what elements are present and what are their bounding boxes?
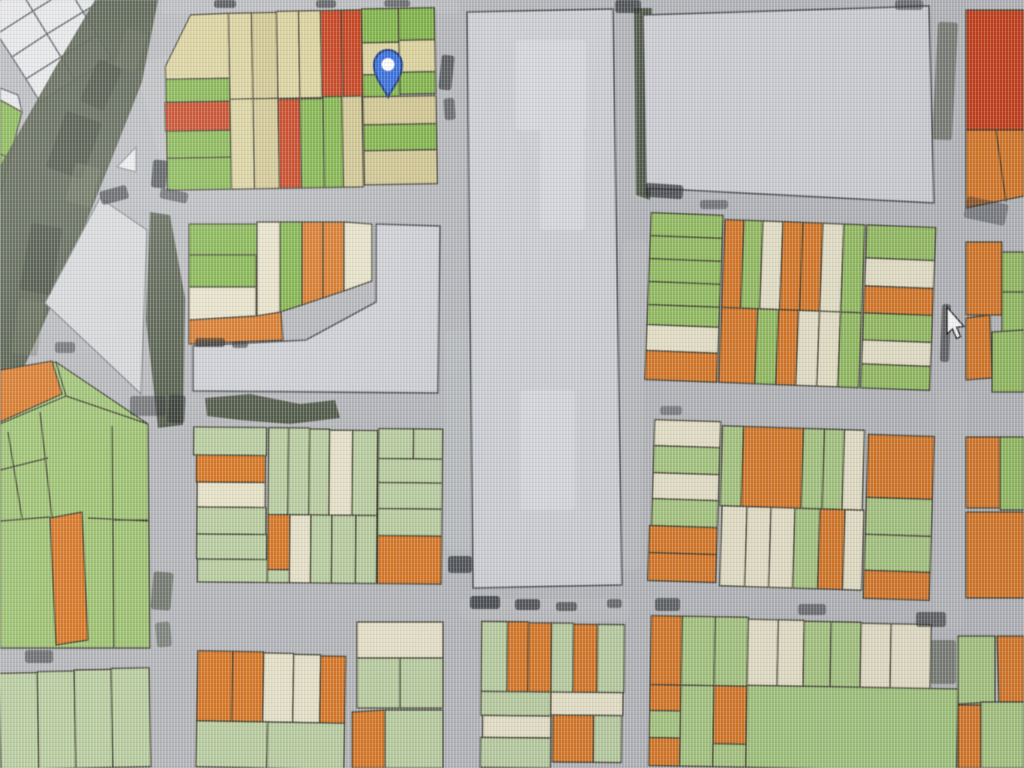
parcel[interactable] — [399, 40, 436, 73]
parcel[interactable] — [650, 685, 681, 712]
parcel[interactable] — [0, 673, 39, 768]
parcel[interactable] — [780, 222, 803, 311]
parcel[interactable] — [593, 715, 621, 762]
parcel[interactable] — [551, 692, 623, 716]
parcel[interactable] — [310, 515, 332, 583]
parcel[interactable] — [866, 225, 936, 261]
building-roof-detail — [540, 130, 585, 230]
parcel[interactable] — [385, 710, 443, 768]
block-east-upper — [645, 213, 936, 391]
parcel[interactable] — [552, 715, 593, 762]
road-mark — [316, 0, 336, 8]
parcel[interactable] — [363, 96, 436, 125]
parcel[interactable] — [863, 313, 933, 343]
parcel[interactable] — [1002, 252, 1024, 292]
road-mark — [384, 0, 410, 7]
parcel[interactable] — [481, 621, 508, 691]
parcel[interactable] — [342, 96, 364, 187]
parcel[interactable] — [647, 305, 720, 328]
parcel[interactable] — [361, 8, 399, 43]
parcel[interactable] — [263, 653, 294, 723]
parcel[interactable] — [302, 222, 323, 305]
parcel[interactable] — [280, 222, 302, 312]
parcel[interactable] — [864, 286, 934, 316]
parcel[interactable] — [528, 623, 552, 692]
parcel[interactable] — [646, 325, 719, 354]
road-mark — [930, 640, 956, 684]
parcel[interactable] — [257, 222, 280, 318]
block-corner-sw — [0, 668, 151, 768]
parcel[interactable] — [355, 515, 377, 583]
block-south-2 — [352, 622, 443, 768]
parcel[interactable] — [323, 96, 344, 187]
parcel[interactable] — [278, 99, 302, 188]
parcel[interactable] — [228, 13, 252, 99]
parcel[interactable] — [363, 124, 436, 151]
parcel[interactable] — [958, 705, 981, 768]
parcel[interactable] — [196, 721, 268, 768]
parcel[interactable] — [378, 429, 413, 459]
parcel[interactable] — [364, 150, 438, 185]
parcel[interactable] — [50, 512, 88, 645]
parcel[interactable] — [649, 259, 722, 285]
parcel[interactable] — [681, 616, 715, 686]
road-mark — [895, 0, 923, 10]
parcel[interactable] — [197, 534, 267, 560]
parcel[interactable] — [800, 222, 823, 311]
parcel[interactable] — [842, 430, 865, 511]
parcel[interactable] — [289, 515, 311, 583]
block-south-1 — [196, 651, 346, 768]
parcel[interactable] — [357, 622, 443, 658]
road-mark — [55, 342, 75, 353]
parcel[interactable] — [649, 738, 680, 767]
parcel[interactable] — [818, 509, 846, 590]
road-mark — [645, 183, 684, 200]
parcel[interactable] — [329, 430, 353, 515]
parcel[interactable] — [648, 553, 717, 583]
road-mark — [214, 0, 236, 8]
parcel[interactable] — [653, 446, 720, 475]
block-north-main — [163, 8, 437, 191]
parcel[interactable] — [300, 99, 325, 188]
parcel[interactable] — [645, 351, 718, 383]
road-mark — [25, 650, 53, 663]
parcel[interactable] — [997, 636, 1024, 702]
parcel[interactable] — [197, 559, 267, 583]
building-roof-detail — [520, 390, 575, 510]
parcel[interactable] — [803, 621, 831, 687]
parcel[interactable] — [966, 242, 1002, 315]
road-mark — [607, 599, 622, 608]
parcel[interactable] — [398, 8, 435, 41]
parcel[interactable] — [253, 98, 280, 188]
parcel[interactable] — [860, 623, 891, 689]
parcel[interactable] — [890, 624, 931, 690]
parcel[interactable] — [378, 459, 442, 484]
parcel[interactable] — [193, 427, 266, 456]
parcel[interactable] — [232, 651, 264, 722]
parcel[interactable] — [654, 420, 721, 448]
parcel[interactable] — [801, 428, 825, 509]
parcel[interactable] — [400, 658, 443, 708]
parcel[interactable] — [377, 536, 441, 585]
road-mark — [443, 98, 456, 121]
parcel[interactable] — [776, 310, 799, 386]
parcel[interactable] — [864, 534, 931, 572]
parcel[interactable] — [352, 710, 385, 768]
parcel[interactable] — [838, 312, 862, 388]
parcel[interactable] — [777, 620, 804, 687]
parcel[interactable] — [309, 429, 330, 515]
road-mark — [448, 556, 472, 573]
parcel[interactable] — [865, 497, 932, 536]
parcel[interactable] — [680, 685, 714, 767]
parcel[interactable] — [966, 130, 1024, 208]
parcel[interactable] — [720, 506, 748, 587]
block-east-mid — [647, 420, 934, 601]
parcel[interactable] — [251, 12, 277, 98]
road-mark — [155, 621, 173, 647]
parcel[interactable] — [863, 570, 930, 600]
parcel[interactable] — [331, 515, 356, 583]
parcel[interactable] — [650, 213, 723, 239]
parcel[interactable] — [573, 624, 598, 692]
parcel[interactable] — [714, 617, 748, 687]
parcel[interactable] — [267, 570, 289, 583]
road-mark — [798, 604, 826, 615]
road-mark — [615, 0, 641, 13]
road-mark — [556, 602, 577, 611]
building-north-east[interactable] — [643, 6, 934, 203]
parcel[interactable] — [378, 483, 442, 510]
parcel[interactable] — [746, 685, 958, 768]
parcel[interactable] — [597, 624, 625, 692]
parcel[interactable] — [196, 455, 265, 483]
parcel[interactable] — [866, 434, 934, 499]
parcel[interactable] — [741, 426, 803, 508]
parcel[interactable] — [320, 656, 346, 723]
map-viewport[interactable] — [0, 0, 1024, 768]
road-mark — [916, 612, 946, 627]
parcel[interactable] — [230, 99, 255, 189]
parcel[interactable] — [74, 669, 113, 768]
parcel[interactable] — [841, 224, 865, 313]
parcel[interactable] — [483, 715, 551, 738]
parcel[interactable] — [189, 255, 256, 287]
parcel[interactable] — [197, 651, 233, 722]
parcel[interactable] — [507, 622, 529, 692]
parcel[interactable] — [958, 636, 995, 704]
parcel[interactable] — [378, 509, 442, 537]
parcel[interactable] — [713, 744, 746, 768]
road-mark — [232, 341, 248, 348]
block-east-lower — [649, 616, 960, 768]
parcel[interactable] — [320, 10, 342, 96]
parcel[interactable] — [267, 515, 289, 570]
parcel[interactable] — [167, 130, 231, 158]
parcel[interactable] — [400, 72, 436, 95]
parcel[interactable] — [817, 311, 841, 387]
parcel[interactable] — [341, 10, 362, 96]
parcel[interactable] — [966, 437, 1000, 508]
parcel[interactable] — [648, 282, 721, 308]
parcel[interactable] — [267, 722, 345, 768]
parcel[interactable] — [189, 287, 256, 320]
parcel[interactable] — [652, 473, 719, 501]
parcel[interactable] — [111, 668, 151, 768]
parcel[interactable] — [551, 623, 574, 692]
parcel[interactable] — [649, 236, 722, 262]
parcel[interactable] — [745, 507, 772, 588]
block-south-center — [480, 621, 624, 768]
parcel[interactable] — [861, 364, 931, 391]
parcel[interactable] — [755, 309, 779, 385]
parcel[interactable] — [357, 658, 400, 708]
parcel[interactable] — [37, 671, 76, 768]
building-roof-detail — [516, 40, 586, 130]
road-patch — [933, 390, 967, 630]
pin-dot — [382, 58, 395, 71]
parcel[interactable] — [650, 616, 682, 686]
parcel[interactable] — [649, 711, 680, 739]
road-mark — [150, 571, 173, 611]
parcel[interactable] — [796, 310, 820, 386]
parcel[interactable] — [760, 221, 783, 310]
parcel[interactable] — [298, 11, 322, 98]
parcel[interactable] — [344, 222, 372, 291]
parcel[interactable] — [288, 428, 310, 515]
parcel[interactable] — [865, 258, 935, 289]
parcel[interactable] — [966, 512, 1024, 598]
parcel[interactable] — [981, 702, 1024, 768]
road-mark — [655, 598, 680, 611]
parcel[interactable] — [165, 101, 230, 131]
parcel[interactable] — [480, 737, 550, 768]
parcel[interactable] — [843, 510, 865, 591]
parcel[interactable] — [189, 224, 257, 255]
parcel[interactable] — [481, 691, 551, 716]
road-mark — [151, 159, 168, 188]
parcel[interactable] — [769, 507, 796, 588]
parcel[interactable] — [719, 307, 758, 383]
parcel[interactable] — [713, 686, 747, 745]
road-mark — [470, 596, 500, 609]
parcel[interactable] — [352, 430, 378, 515]
map-canvas[interactable] — [0, 0, 1024, 768]
parcel[interactable] — [651, 499, 718, 528]
parcel[interactable] — [197, 507, 266, 535]
parcel[interactable] — [966, 10, 1024, 130]
block-center-left — [192, 427, 442, 584]
parcel[interactable] — [830, 622, 861, 689]
parcel[interactable] — [822, 429, 845, 510]
parcel[interactable] — [276, 11, 300, 98]
parcel[interactable] — [649, 526, 718, 555]
parcel[interactable] — [720, 426, 744, 507]
road-mark — [130, 396, 166, 416]
parcel[interactable] — [1002, 292, 1024, 332]
parcel[interactable] — [166, 78, 230, 102]
parcel[interactable] — [323, 222, 344, 298]
road-mark — [660, 406, 682, 415]
parcel[interactable] — [167, 157, 233, 190]
parcel[interactable] — [293, 654, 321, 722]
road-mark — [515, 599, 540, 610]
parcel[interactable] — [820, 223, 844, 312]
parcel[interactable] — [1000, 437, 1024, 510]
parcel[interactable] — [197, 482, 265, 508]
parcel[interactable] — [413, 429, 442, 459]
parcel[interactable] — [747, 619, 778, 687]
parcel[interactable] — [992, 330, 1024, 392]
parcel[interactable] — [862, 340, 932, 367]
parcel[interactable] — [793, 508, 821, 589]
parcel[interactable] — [966, 315, 992, 380]
road-mark — [195, 338, 225, 347]
road-mark — [167, 395, 185, 424]
parcel[interactable] — [268, 428, 289, 515]
road-mark — [700, 200, 728, 209]
